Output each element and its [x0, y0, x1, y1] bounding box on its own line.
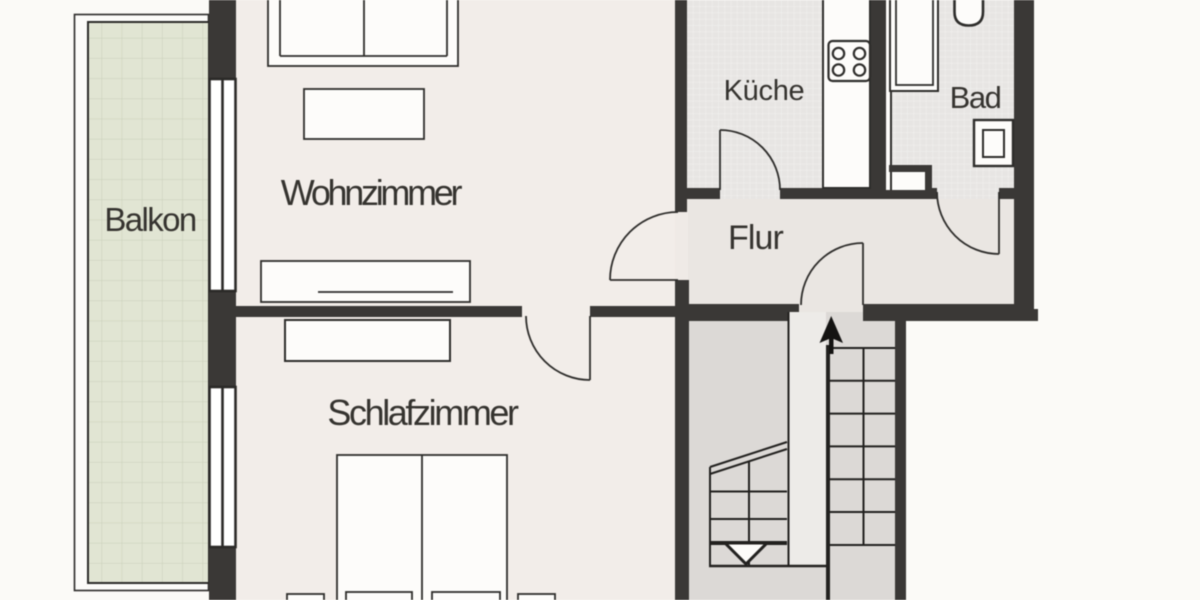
svg-text:Balkon: Balkon [104, 201, 196, 238]
svg-text:Wohnzimmer: Wohnzimmer [281, 172, 463, 213]
svg-text:Flur: Flur [728, 219, 784, 257]
svg-text:Küche: Küche [724, 75, 805, 107]
svg-text:Bad: Bad [950, 80, 1001, 115]
svg-text:Schlafzimmer: Schlafzimmer [327, 392, 519, 433]
